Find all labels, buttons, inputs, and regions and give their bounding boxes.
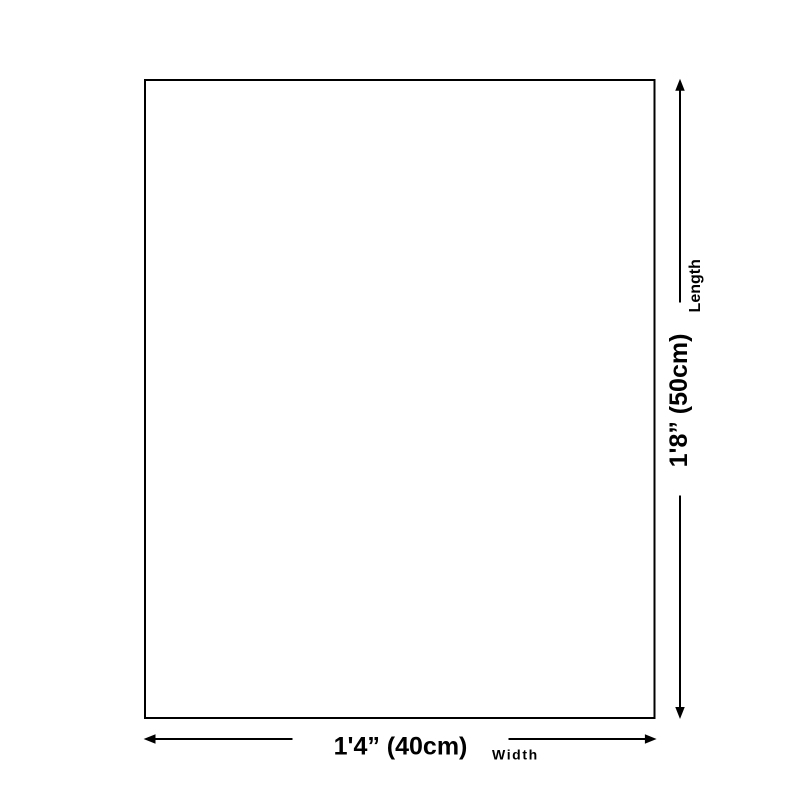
svg-text:1'8” (50cm): 1'8” (50cm) [665, 334, 693, 468]
svg-text:Width: Width [492, 747, 539, 763]
svg-text:Length: Length [687, 259, 704, 312]
svg-text:1'4” (40cm): 1'4” (40cm) [334, 733, 468, 761]
